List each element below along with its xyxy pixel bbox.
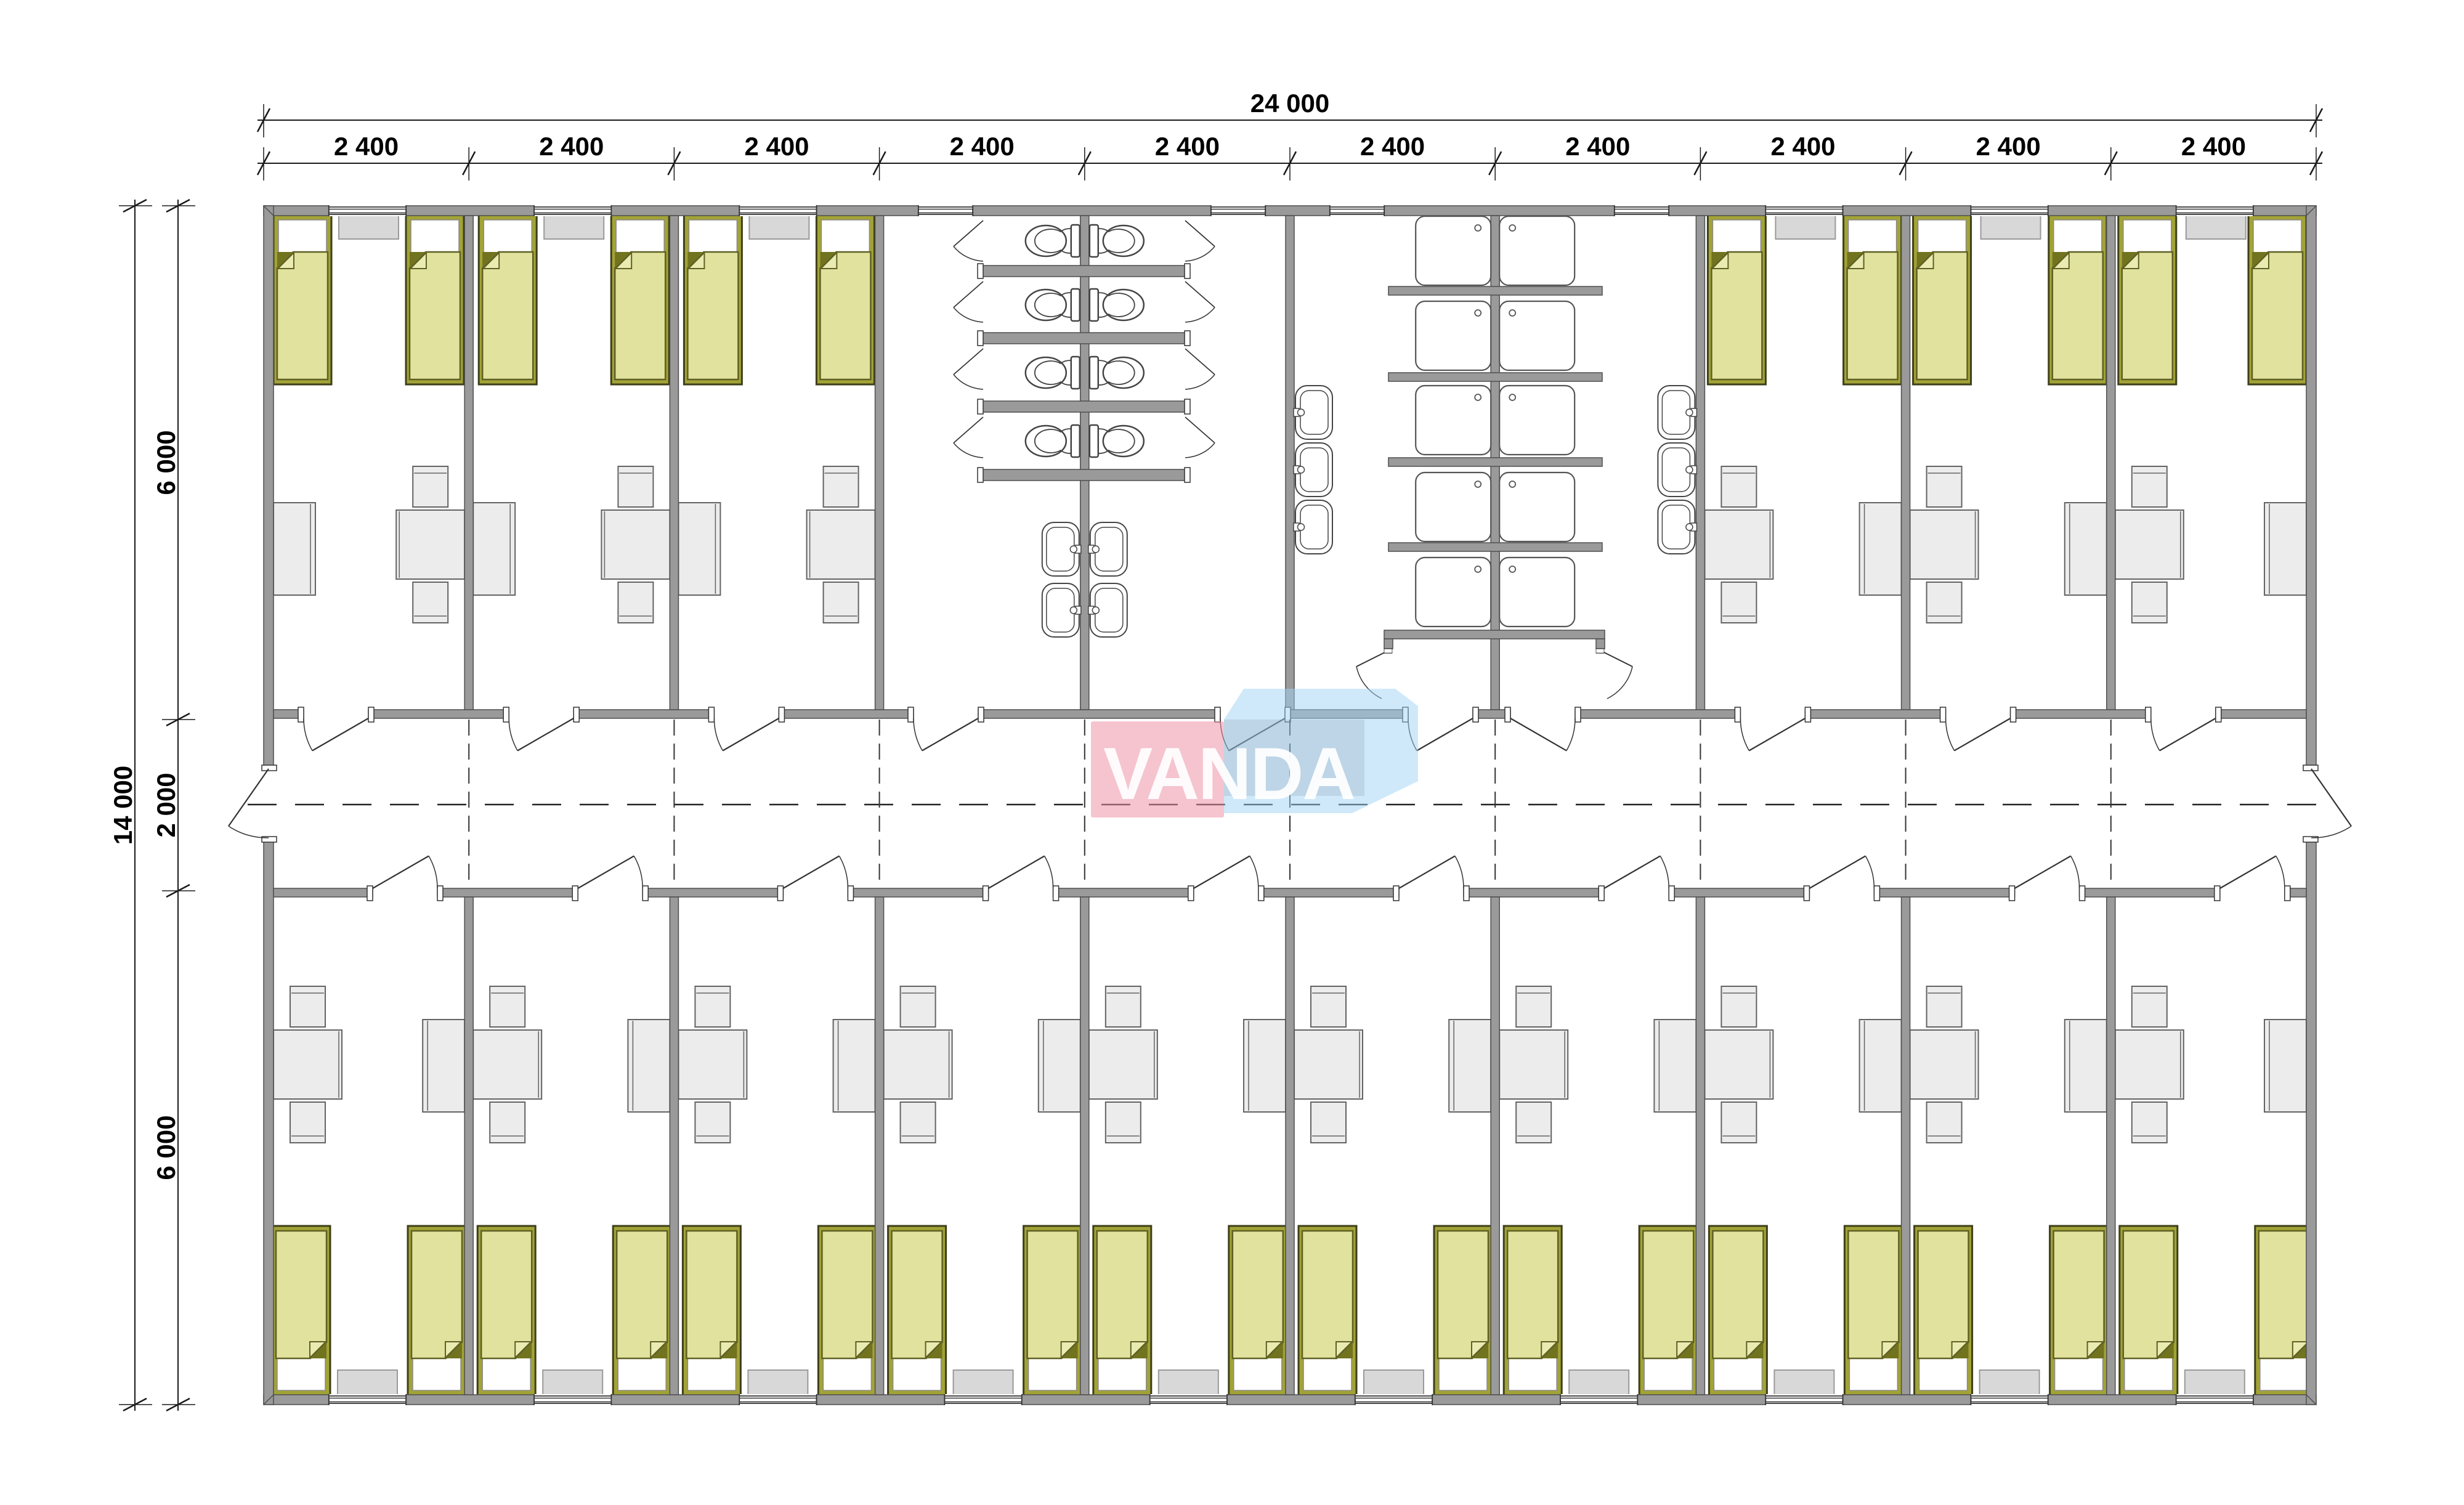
- svg-text:2 400: 2 400: [1976, 132, 2041, 161]
- svg-text:2 400: 2 400: [1770, 132, 1835, 161]
- svg-text:2 400: 2 400: [1155, 132, 1220, 161]
- svg-text:24 000: 24 000: [1250, 89, 1329, 118]
- svg-text:6 000: 6 000: [152, 430, 180, 495]
- svg-text:2 400: 2 400: [1565, 132, 1630, 161]
- svg-text:2 400: 2 400: [950, 132, 1015, 161]
- svg-text:2 400: 2 400: [334, 132, 399, 161]
- svg-text:2 400: 2 400: [1360, 132, 1425, 161]
- svg-text:2 400: 2 400: [539, 132, 604, 161]
- svg-text:2 000: 2 000: [152, 773, 180, 837]
- svg-text:VANDA: VANDA: [1103, 732, 1355, 815]
- svg-text:2 400: 2 400: [744, 132, 809, 161]
- svg-text:14 000: 14 000: [108, 766, 137, 845]
- svg-text:2 400: 2 400: [2181, 132, 2246, 161]
- svg-text:6 000: 6 000: [152, 1115, 180, 1180]
